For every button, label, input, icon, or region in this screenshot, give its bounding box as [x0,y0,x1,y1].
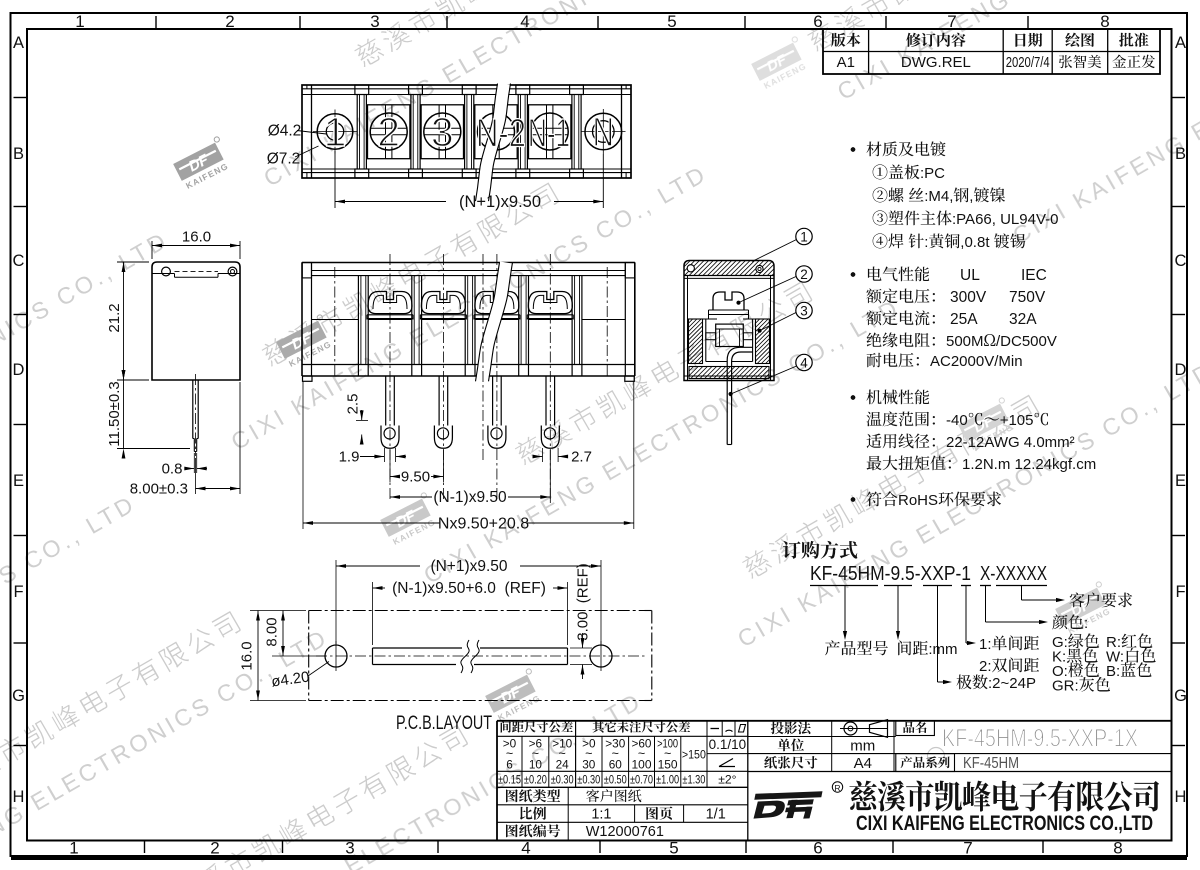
svg-text:-40: -40 [946,412,968,429]
svg-text:F: F [1175,583,1185,601]
svg-text:9.50: 9.50 [401,469,430,486]
svg-text:Ø7.2: Ø7.2 [267,151,301,168]
svg-text:KF-45HM-9.5-XXP-1X: KF-45HM-9.5-XXP-1X [942,725,1138,753]
svg-text:A: A [1175,34,1186,52]
svg-text:C: C [13,252,25,270]
svg-text:3: 3 [345,839,354,858]
svg-text:10: 10 [529,758,543,772]
svg-text:IEC: IEC [1021,267,1047,284]
svg-text:2.5: 2.5 [345,394,362,415]
svg-text:P.C.B.LAYOUT: P.C.B.LAYOUT [396,713,492,734]
svg-text:,0.8t: ,0.8t [960,234,993,251]
svg-text:UL: UL [960,267,980,284]
svg-text:C: C [1175,252,1187,270]
svg-text:24: 24 [556,758,570,772]
svg-text:H: H [13,788,25,806]
svg-text:±0.20: ±0.20 [524,773,547,787]
svg-text:3: 3 [370,12,379,31]
svg-text:750V: 750V [1009,289,1046,306]
svg-text:KF-45HM: KF-45HM [963,755,1019,772]
svg-text:2: 2 [377,109,400,155]
svg-text:±0.50: ±0.50 [604,773,627,787]
svg-text:2: 2 [225,12,234,31]
svg-text:A: A [13,34,24,52]
svg-text:>150: >150 [682,748,706,762]
svg-text:G: G [1174,687,1187,705]
svg-text::PA66, UL94V-0: :PA66, UL94V-0 [952,211,1058,228]
svg-text:21.2: 21.2 [106,303,123,332]
svg-text:6: 6 [813,839,822,858]
svg-text:1.9: 1.9 [339,449,360,466]
svg-text:1: 1 [324,109,347,155]
svg-text:0.8: 0.8 [162,461,183,478]
svg-text:60: 60 [609,758,623,772]
svg-text:RoHS: RoHS [898,492,938,509]
svg-text:2: 2 [800,267,808,282]
svg-text:300V: 300V [950,289,987,306]
svg-text:8: 8 [1113,839,1122,858]
svg-text::: : [1084,615,1088,632]
svg-text:KF-45HM-9.5-XXP-1: KF-45HM-9.5-XXP-1 [810,563,971,585]
svg-text:Nx9.50+20.8: Nx9.50+20.8 [438,516,529,533]
svg-text:±2°: ±2° [718,773,736,787]
svg-text:E: E [13,472,24,490]
svg-text:A4: A4 [854,755,872,772]
svg-text:1: 1 [800,230,808,245]
svg-text:6: 6 [506,758,513,772]
svg-text:N-2: N-2 [476,112,526,156]
svg-text:0.1/10: 0.1/10 [709,737,747,752]
svg-text:B: B [1175,145,1186,163]
svg-text:±1.00: ±1.00 [656,773,679,787]
svg-text:GR:: GR: [1052,678,1079,695]
svg-text:G: G [12,687,25,705]
svg-text:25A: 25A [950,311,978,328]
svg-text:2: 2 [210,839,219,858]
svg-text:AC2000V/Min: AC2000V/Min [930,353,1023,370]
svg-text:2020/7/4: 2020/7/4 [1006,55,1050,71]
svg-text:150: 150 [658,758,678,772]
svg-text:500M: 500M [946,333,984,350]
svg-text:CIXI KAIFENG ELECTRONICS CO.,L: CIXI KAIFENG ELECTRONICS CO.,LTD [856,812,1153,835]
svg-text:1/1: 1/1 [706,807,726,823]
svg-text:1:1: 1:1 [591,807,611,823]
svg-text:5: 5 [667,12,676,31]
svg-text:N: N [593,109,614,155]
svg-text:Ø4.2: Ø4.2 [268,123,302,140]
svg-text:8.00: 8.00 [264,617,281,646]
svg-text:5: 5 [669,839,678,858]
svg-text:B:: B: [1106,663,1120,680]
svg-text:,: , [969,188,973,205]
svg-text:X-XXXXX: X-XXXXX [980,563,1047,585]
svg-text:1.2N.m 12.24kgf.cm: 1.2N.m 12.24kgf.cm [962,456,1096,473]
svg-text:(N+1)x9.50: (N+1)x9.50 [459,193,541,211]
svg-text:(N+1)x9.50: (N+1)x9.50 [430,558,507,575]
svg-text:±0.70: ±0.70 [630,773,653,787]
svg-text:4: 4 [521,839,530,858]
svg-text:16.0: 16.0 [182,229,211,246]
svg-text:A1: A1 [837,54,855,71]
svg-text:4: 4 [800,356,808,371]
svg-text:8.00±0.3: 8.00±0.3 [130,481,188,498]
svg-text:7: 7 [963,839,972,858]
svg-text:D: D [13,361,25,379]
svg-text:30: 30 [582,758,596,772]
svg-text:3: 3 [431,109,454,155]
svg-text:±0.30: ±0.30 [577,773,600,787]
svg-text:6: 6 [813,12,822,31]
svg-text:/DC500V: /DC500V [996,333,1057,350]
svg-text:2.7: 2.7 [571,449,592,466]
svg-text::mm: :mm [928,641,957,658]
svg-text:±0.15: ±0.15 [498,773,521,787]
svg-text:2:: 2: [979,658,992,675]
svg-text::2~24P: :2~24P [988,675,1036,692]
svg-text:(N-1)x9.50+6.0 (REF): (N-1)x9.50+6.0 (REF) [392,580,546,597]
svg-text:4: 4 [520,12,529,31]
svg-text:E: E [1175,472,1186,490]
svg-text:1: 1 [69,839,78,858]
svg-text:F: F [13,583,23,601]
svg-text:100: 100 [632,758,652,772]
svg-text:DWG.REL: DWG.REL [901,54,971,71]
svg-text:16.0: 16.0 [239,641,256,670]
svg-text:+105: +105 [1000,412,1034,429]
svg-text:±0.30: ±0.30 [551,773,574,787]
svg-text:H: H [1175,788,1187,806]
svg-text::M4,: :M4, [924,188,953,205]
svg-text:32A: 32A [1009,311,1037,328]
svg-text:3: 3 [800,304,808,319]
svg-text::PC: :PC [920,165,945,182]
svg-text:3.00 (REF): 3.00 (REF) [575,563,592,641]
svg-text::: : [924,234,928,251]
svg-text:22-12AWG 4.0mm²: 22-12AWG 4.0mm² [946,434,1075,451]
svg-text:11.50±0.3: 11.50±0.3 [106,381,123,447]
svg-text:B: B [13,145,24,163]
svg-text:D: D [1175,361,1187,379]
svg-text:1: 1 [75,12,84,31]
svg-text:(N-1)x9.50: (N-1)x9.50 [433,489,507,506]
svg-text:W12000761: W12000761 [586,824,664,840]
svg-text:mm: mm [850,738,875,755]
svg-text:±1.30: ±1.30 [682,773,705,787]
svg-text:N-1: N-1 [528,112,570,156]
svg-text:R: R [834,783,840,793]
svg-text:1:: 1: [979,636,992,653]
